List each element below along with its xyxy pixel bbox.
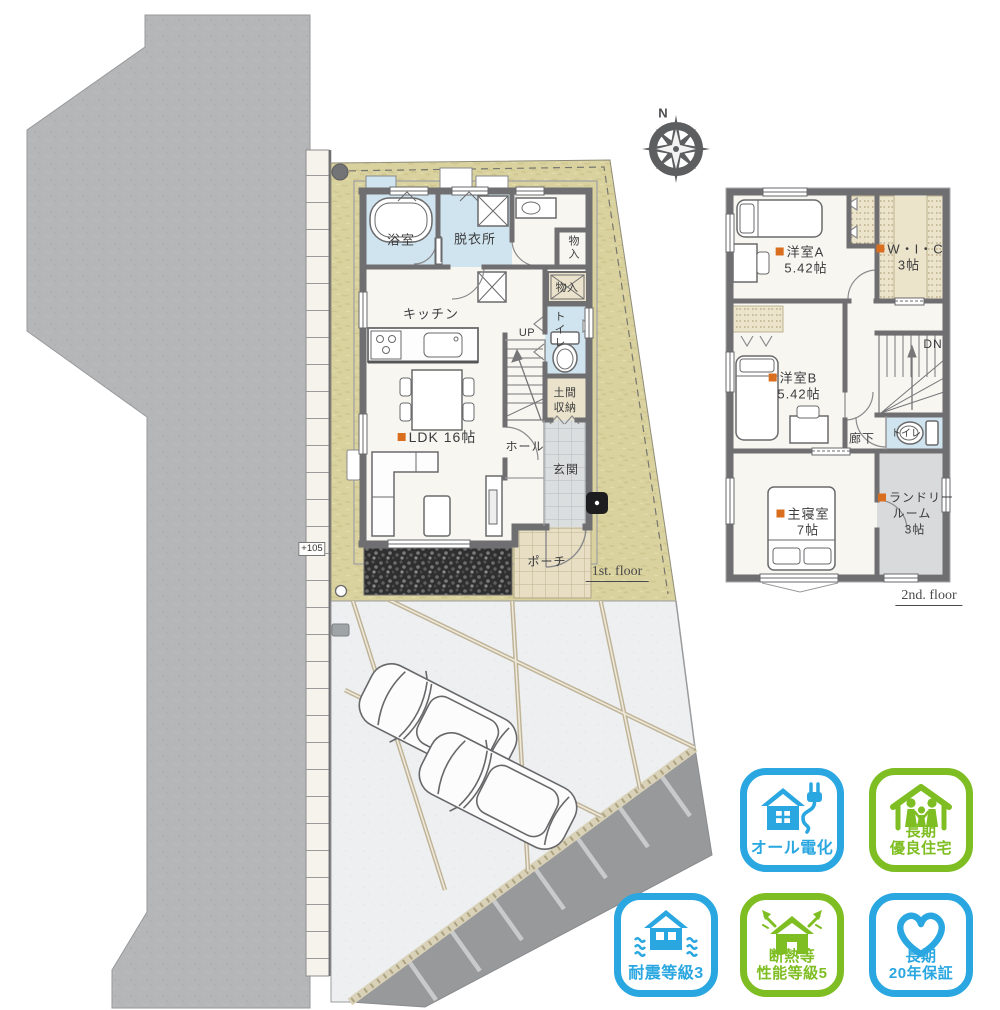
label-laundry-3: 3帖	[905, 521, 926, 538]
label-toilet-1f: トイレ	[551, 311, 567, 350]
desk-room-a	[733, 244, 757, 282]
label-master-size: 7帖	[797, 520, 819, 539]
badge-label: 耐震等級3	[628, 965, 703, 983]
badge-insulation-grade: 断熱等性能等級5	[740, 893, 844, 997]
room-bullet	[769, 373, 777, 381]
label-closet-a: 物入	[565, 235, 581, 261]
badge-all-electric: オール電化	[740, 768, 844, 872]
label-ldk: LDK 16帖	[398, 427, 477, 447]
badge-seismic-grade: 耐震等級3	[614, 893, 718, 997]
label-up: UP	[519, 327, 535, 339]
coffee-table	[424, 496, 450, 536]
label-corridor: 廊下	[849, 430, 875, 447]
label-kitchen: キッチン	[403, 304, 459, 323]
exterior-unit	[440, 168, 472, 189]
label-laundry-2: ルーム	[893, 505, 932, 522]
road-area	[27, 15, 310, 1008]
label-laundry-1: ランドリー	[878, 489, 954, 506]
badge-label: オール電化	[751, 840, 834, 858]
gravel-bed	[364, 548, 512, 595]
badge-label: 長期20年保証	[889, 949, 953, 983]
house-plug-icon	[759, 782, 825, 838]
site-plan-drawing	[0, 0, 1000, 1010]
room-bullet	[878, 493, 886, 501]
label-wic-size: 3帖	[898, 255, 920, 274]
label-closet-b: 物入	[556, 279, 579, 295]
house-quake-icon	[634, 907, 698, 961]
label-porch: ポーチ	[527, 553, 566, 570]
label-dn: DN	[923, 337, 942, 351]
label-entrance: 玄関	[553, 461, 579, 478]
room-bullet	[398, 433, 406, 441]
badge-label: 断熱等性能等級5	[757, 949, 828, 983]
dining-table	[412, 370, 462, 430]
boundary-marker	[336, 586, 347, 597]
badge-label: 長期優良住宅	[890, 824, 952, 858]
boundary-marker	[332, 164, 348, 180]
room-bullet	[776, 509, 784, 517]
desk-room-b	[790, 416, 828, 443]
badge-quality-housing: 長期優良住宅	[869, 768, 973, 872]
ac-outdoor-unit	[347, 450, 360, 480]
meter-box	[332, 624, 349, 636]
floor-label-1f: 1st. floor	[586, 564, 649, 582]
elevation-marker: +105	[298, 542, 325, 556]
room-bullet	[876, 244, 884, 252]
closet-b	[733, 306, 783, 332]
label-dressing: 脱衣所	[454, 229, 496, 248]
room-bullet	[776, 247, 784, 255]
label-room-b-size: 5.42帖	[777, 384, 820, 403]
floor-label-2f: 2nd. floor	[895, 588, 962, 606]
label-doma-2: 収納	[554, 399, 577, 415]
toilet-tank-2f	[926, 421, 938, 445]
label-hall: ホール	[505, 438, 544, 455]
floorplan-page: N +105 浴室 脱衣所 キッチン LDK 16帖 UP 物入 物入 トイレ …	[0, 0, 1000, 1010]
label-bath: 浴室	[387, 230, 415, 249]
label-toilet-2f: トイレ	[891, 425, 921, 440]
label-room-a-size: 5.42帖	[784, 258, 827, 277]
boundary-wall-strip	[306, 150, 329, 976]
compass-north-label: N	[658, 106, 667, 121]
compass-icon	[642, 115, 710, 183]
label-doma-1: 土間	[554, 384, 577, 400]
badge-warranty: 長期20年保証	[869, 893, 973, 997]
